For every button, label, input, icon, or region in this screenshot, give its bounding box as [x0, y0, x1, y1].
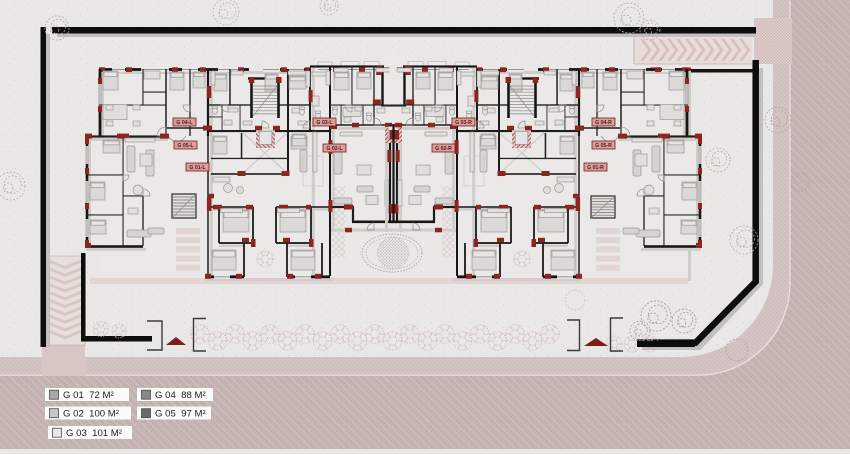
svg-text:G 03-L: G 03-L [316, 120, 333, 126]
svg-text:G 03 101 M²: G 03 101 M² [66, 428, 123, 439]
svg-text:G 02-R: G 02-R [435, 146, 452, 152]
svg-text:G 05 97 M²: G 05 97 M² [155, 409, 206, 420]
svg-text:G 01-L: G 01-L [189, 165, 206, 171]
svg-text:G 03-R: G 03-R [455, 120, 472, 126]
svg-text:G 01 72 M²: G 01 72 M² [63, 390, 114, 401]
svg-text:G 05-R: G 05-R [595, 143, 612, 149]
svg-text:G 02 100 M²: G 02 100 M² [63, 409, 120, 420]
svg-text:G 02-L: G 02-L [326, 146, 343, 152]
svg-text:G 01-R: G 01-R [587, 165, 604, 171]
svg-text:G 04-R: G 04-R [595, 120, 612, 126]
svg-text:G 04-L: G 04-L [176, 120, 193, 126]
svg-text:G 04 88 M²: G 04 88 M² [155, 390, 206, 401]
svg-text:G 05-L: G 05-L [177, 143, 194, 149]
